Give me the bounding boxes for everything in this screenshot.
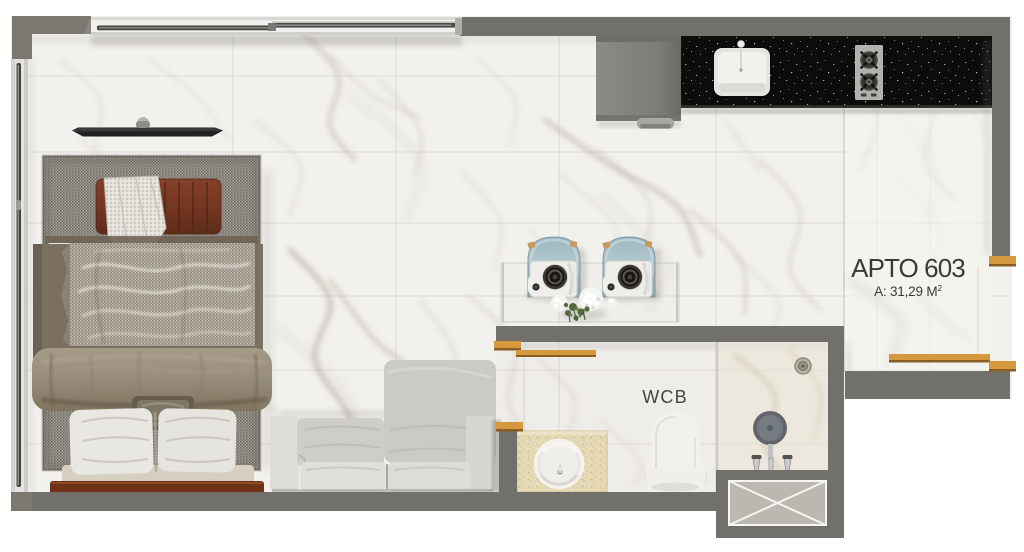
svg-text:WCB: WCB [642,387,688,407]
svg-text:A: 31,29 M2: A: 31,29 M2 [874,283,942,299]
svg-text:APTO 603: APTO 603 [851,253,965,283]
